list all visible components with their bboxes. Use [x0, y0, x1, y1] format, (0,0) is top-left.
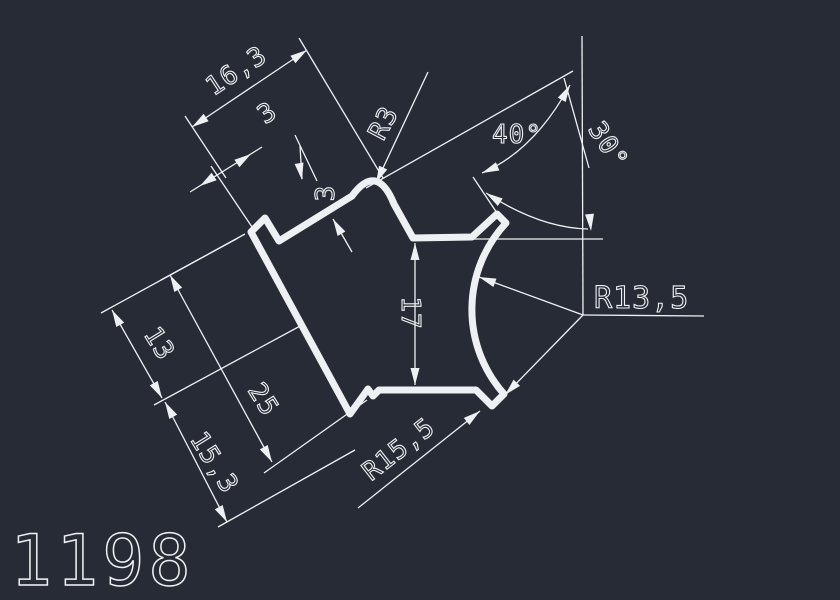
- ext-line-16-3-right: [299, 38, 383, 178]
- ext-line-16-3-left: [185, 116, 226, 178]
- arrow-13-bottom: [150, 381, 166, 400]
- drawing-svg: 16,3 3 3 R3 40° 30° R13,5 17 13 25 15,3 …: [0, 0, 840, 600]
- ext-line-chain-mid: [154, 325, 302, 405]
- arrow-15-3-top: [161, 400, 177, 419]
- dim-height-17-label: 17: [395, 296, 425, 329]
- drawing-number: 1198: [10, 520, 195, 600]
- arrow-16-3-right: [290, 46, 309, 63]
- dimension-labels: 16,3 3 3 R3 40° 30° R13,5 17 13 25 15,3 …: [137, 40, 689, 499]
- ext-line-lip-right: [295, 135, 317, 181]
- vertical-reference-line: [582, 36, 583, 315]
- dim-width-total-label: 16,3: [201, 40, 273, 102]
- dim-line-25: [170, 275, 272, 462]
- arrow-13-top: [108, 308, 124, 327]
- dim-length-25-label: 25: [241, 378, 284, 422]
- arrow-25-bottom: [260, 445, 276, 464]
- dim-lip-width-label: 3: [252, 96, 282, 130]
- dim-lip-depth-label: 3: [311, 185, 341, 202]
- tick-40deg: [473, 177, 497, 213]
- ext-line-lip-left: [211, 166, 252, 227]
- cad-drawing-canvas: 16,3 3 3 R3 40° 30° R13,5 17 13 25 15,3 …: [0, 0, 840, 600]
- dim-length-15-3-label: 15,3: [183, 427, 244, 499]
- profile-outline: [251, 181, 506, 414]
- dim-angle-40-label: 40°: [492, 120, 542, 150]
- ext-line-15-3-bottom: [218, 450, 355, 527]
- ext-line-25-top: [161, 238, 238, 280]
- dim-concave-radius-label: R13,5: [594, 281, 689, 316]
- arrow-lip-width-right: [234, 150, 253, 167]
- arrow-17-bottom: [411, 368, 420, 385]
- arrow-17-top: [411, 243, 420, 260]
- dim-top-radius-label: R3: [363, 101, 405, 144]
- arrow-40deg-start: [480, 162, 499, 177]
- dim-length-13-label: 13: [137, 322, 180, 366]
- dim-angle-30-label: 30°: [582, 117, 634, 175]
- arrow-lip-depth-lower: [329, 217, 345, 236]
- arrow-lip-depth-upper: [295, 162, 307, 180]
- arrow-lip-width-left: [197, 173, 216, 190]
